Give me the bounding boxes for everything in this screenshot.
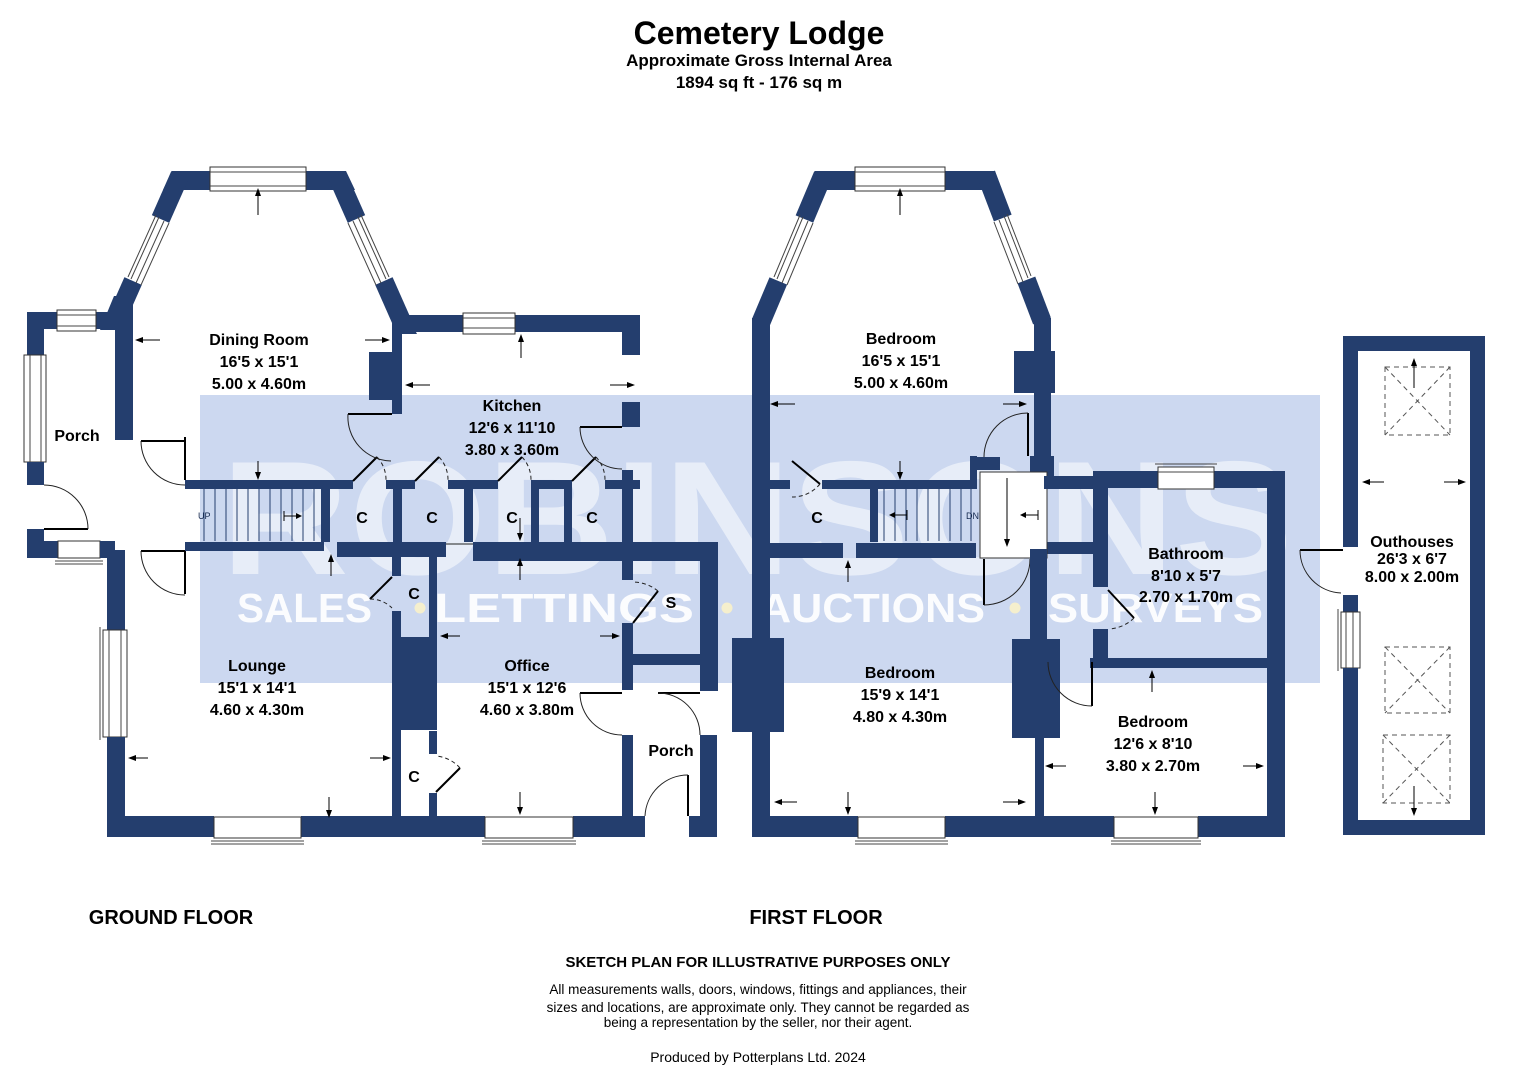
svg-text:GROUND FLOOR: GROUND FLOOR — [89, 907, 254, 929]
svg-text:Bedroom: Bedroom — [1118, 714, 1188, 731]
svg-text:Produced by Potterplans Ltd. 2: Produced by Potterplans Ltd. 2024 — [650, 1049, 866, 1065]
svg-text:Bathroom: Bathroom — [1148, 546, 1224, 563]
svg-text:5.00 x 4.60m: 5.00 x 4.60m — [212, 376, 306, 393]
svg-text:15'1 x 12'6: 15'1 x 12'6 — [488, 680, 567, 697]
svg-text:12'6 x 11'10: 12'6 x 11'10 — [469, 420, 556, 437]
svg-text:4.80 x 4.30m: 4.80 x 4.30m — [853, 709, 947, 726]
svg-text:DN: DN — [966, 511, 979, 521]
svg-text:C: C — [356, 510, 368, 527]
svg-text:C: C — [811, 510, 823, 527]
svg-text:Bedroom: Bedroom — [866, 331, 936, 348]
svg-text:C: C — [506, 510, 518, 527]
svg-text:Lounge: Lounge — [228, 658, 286, 675]
svg-text:S: S — [666, 595, 677, 612]
svg-text:8'10 x 5'7: 8'10 x 5'7 — [1151, 568, 1221, 585]
svg-text:Approximate Gross Internal Are: Approximate Gross Internal Area — [626, 51, 892, 70]
svg-text:2.70 x 1.70m: 2.70 x 1.70m — [1139, 589, 1233, 606]
svg-text:Porch: Porch — [648, 743, 693, 760]
svg-text:Bedroom: Bedroom — [865, 665, 935, 682]
svg-text:15'1 x 14'1: 15'1 x 14'1 — [218, 680, 297, 697]
svg-text:C: C — [586, 510, 598, 527]
svg-text:16'5 x 15'1: 16'5 x 15'1 — [220, 354, 299, 371]
svg-text:12'6 x 8'10: 12'6 x 8'10 — [1114, 736, 1193, 753]
svg-text:1894 sq ft - 176 sq m: 1894 sq ft - 176 sq m — [676, 73, 842, 92]
svg-text:All measurements walls, doors,: All measurements walls, doors, windows, … — [549, 982, 967, 997]
svg-text:Cemetery Lodge: Cemetery Lodge — [634, 15, 885, 51]
svg-text:C: C — [426, 510, 438, 527]
svg-text:Outhouses: Outhouses — [1370, 534, 1454, 551]
svg-text:4.60 x 4.30m: 4.60 x 4.30m — [210, 702, 304, 719]
svg-text:SALES: SALES — [237, 585, 372, 631]
svg-text:15'9 x 14'1: 15'9 x 14'1 — [861, 687, 940, 704]
svg-text:UP: UP — [198, 511, 211, 521]
svg-text:C: C — [408, 586, 420, 603]
svg-text:Kitchen: Kitchen — [483, 398, 542, 415]
svg-text:sizes and locations, are appro: sizes and locations, are approximate onl… — [547, 1000, 970, 1015]
svg-text:3.80 x 2.70m: 3.80 x 2.70m — [1106, 758, 1200, 775]
svg-text:Porch: Porch — [54, 428, 99, 445]
svg-text:Office: Office — [504, 658, 549, 675]
svg-text:16'5 x 15'1: 16'5 x 15'1 — [862, 353, 941, 370]
svg-text:being a representation by the: being a representation by the seller, no… — [604, 1015, 912, 1030]
svg-text:AUCTIONS: AUCTIONS — [760, 585, 985, 631]
svg-text:SKETCH PLAN FOR ILLUSTRATIVE P: SKETCH PLAN FOR ILLUSTRATIVE PURPOSES ON… — [565, 954, 950, 971]
svg-text:5.00 x 4.60m: 5.00 x 4.60m — [854, 375, 948, 392]
svg-text:4.60 x 3.80m: 4.60 x 3.80m — [480, 702, 574, 719]
svg-text:C: C — [408, 769, 420, 786]
svg-text:8.00 x 2.00m: 8.00 x 2.00m — [1365, 569, 1459, 586]
svg-text:3.80 x 3.60m: 3.80 x 3.60m — [465, 442, 559, 459]
svg-text:Dining Room: Dining Room — [209, 332, 309, 349]
svg-text:26'3 x 6'7: 26'3 x 6'7 — [1377, 551, 1447, 568]
svg-text:FIRST FLOOR: FIRST FLOOR — [749, 907, 883, 929]
svg-text:LETTINGS: LETTINGS — [434, 585, 694, 631]
